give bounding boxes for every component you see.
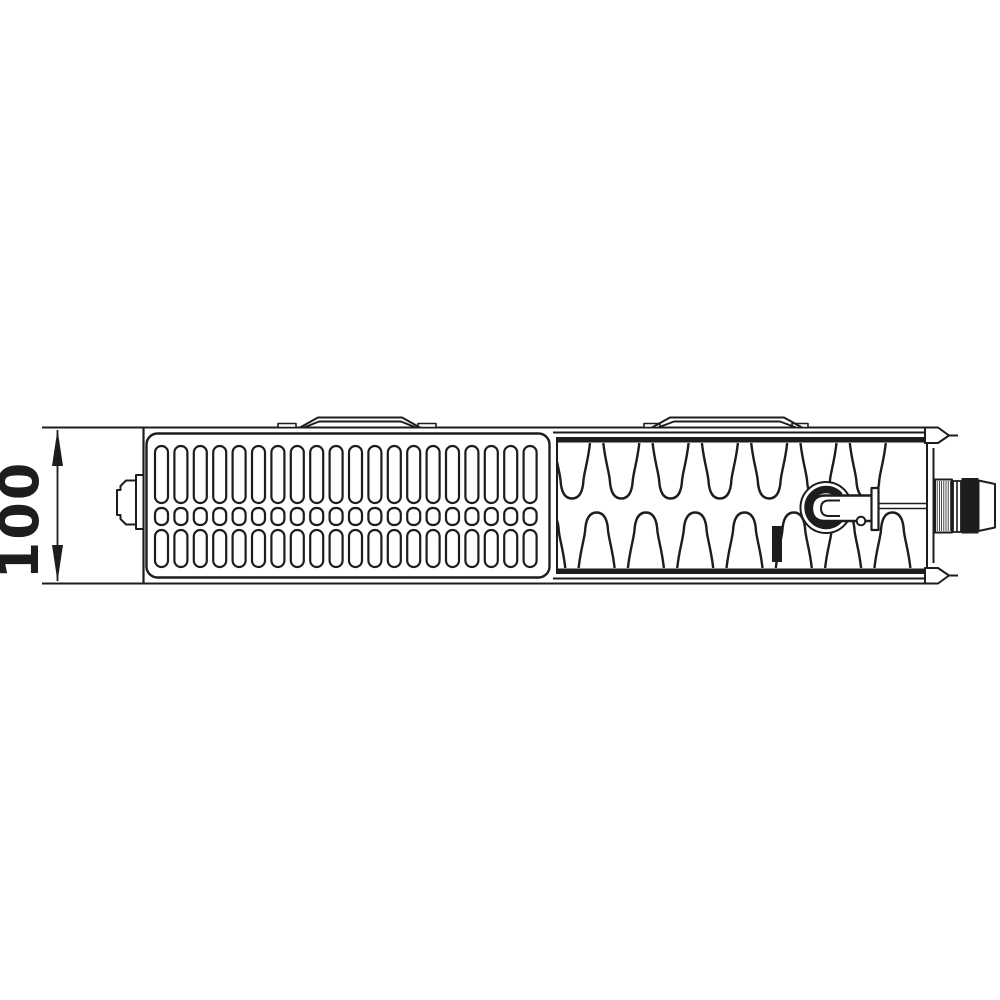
bracket-foot [278,424,296,428]
mounting-bracket-left [278,418,436,428]
drawing-canvas: 100 [0,0,1000,1000]
weld-marker-bar [772,526,782,562]
valve-tail-connection [935,478,995,534]
left-plug-fitting [117,475,144,529]
radiator-body [117,418,995,584]
panel-top-edge-band [557,437,927,443]
plug-body [117,481,136,525]
grille-section [147,434,550,578]
convector-fin-section [529,428,995,584]
valve-detail-hole [857,517,866,526]
valve-spindle-crossbar [872,488,879,530]
panel-end-taper-top [925,428,949,444]
technical-drawing: 100 [0,0,1000,1000]
thread-hatching [937,481,950,531]
dimension-arrowhead-top [52,430,63,467]
bracket-foot [418,424,436,428]
panel-end-taper-bottom [925,568,949,584]
mounting-bracket-right [644,418,808,428]
valve-cap [979,481,996,532]
plug-flange [136,475,144,529]
dimension-arrowhead-bottom [52,545,63,582]
valve-body [801,482,928,533]
dimension-label: 100 [0,461,51,580]
grille-slots [155,446,537,567]
valve-cap-ring [962,478,979,534]
panel-bottom-edge-band [557,569,927,575]
